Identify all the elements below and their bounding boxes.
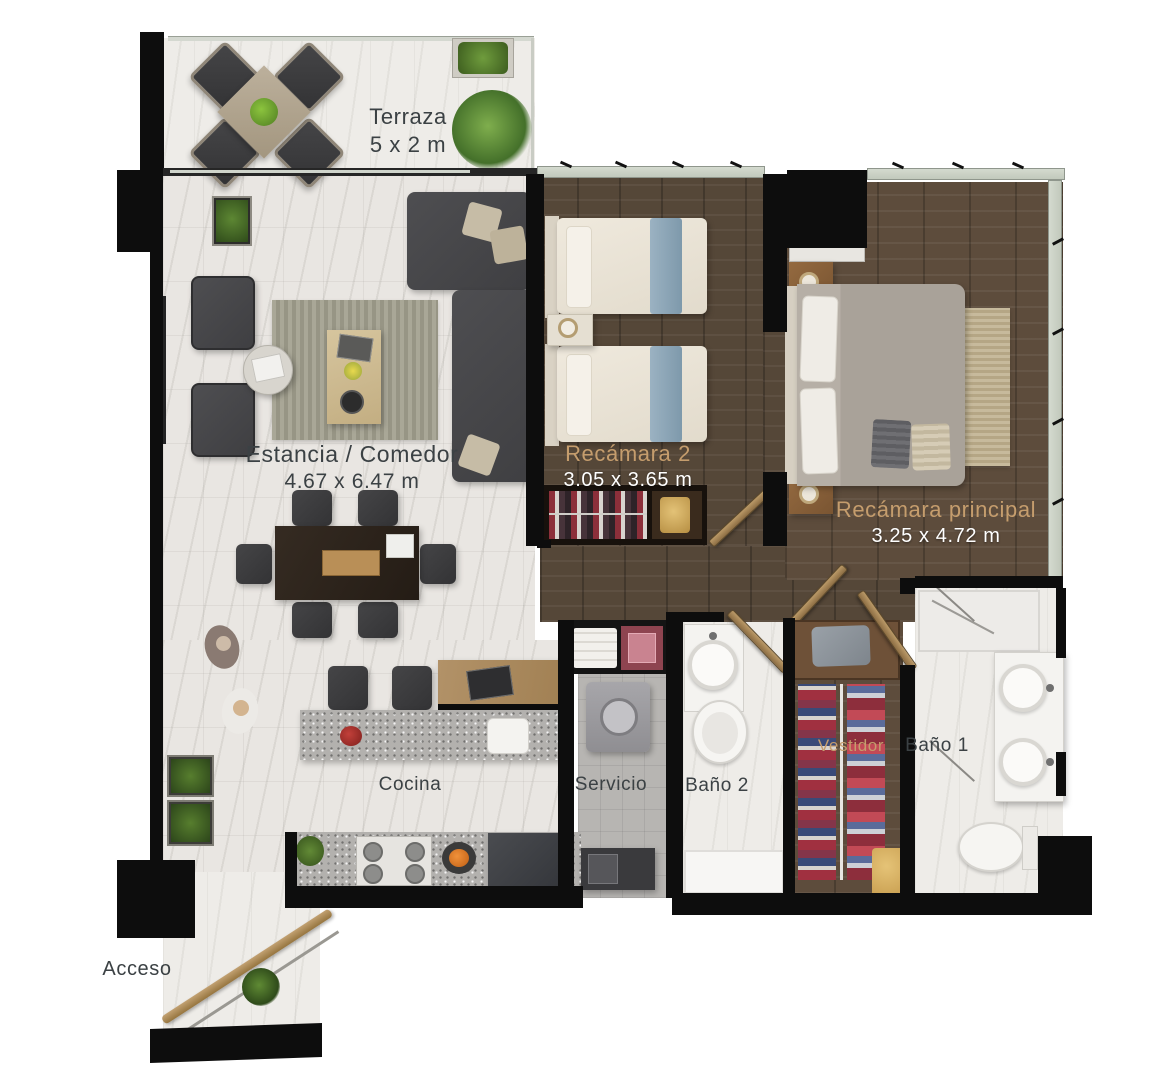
wall-living-recamara2 [526,174,544,546]
acceso-label-name: Acceso [102,957,171,983]
living-planter-plant [216,200,248,242]
wall-bottom-right-block [1038,836,1092,896]
recamara2-closet-clothes [549,491,647,539]
wall-bottom-left-block [117,860,195,938]
wall-bottom-main [672,893,1092,915]
person-figure-head [233,700,249,716]
servicio-pink-box-inner [628,633,656,663]
bano2-label-name: Baño 2 [685,774,749,798]
terraza-label-name: Terraza [369,103,447,131]
island-sink [487,718,529,754]
utility-sink-basin [588,854,618,884]
bed-blue-throw [650,346,682,442]
bano1-toilet-tank [1022,826,1038,870]
estancia-label-dims: 4.67 x 6.47 m [246,469,459,496]
recamara2-label-dims: 3.05 x 3.65 m [564,468,693,494]
wall-recamara2-master-lower [763,472,787,546]
wall-bano1-right-upper [1056,588,1066,658]
wall-left-protrusion [117,170,153,252]
wall-bano2-vestidor [783,618,795,913]
bar-stool [328,666,368,710]
bano2-toilet-seat [702,712,738,754]
window-recamara2-top [537,166,765,178]
wall-kitchen-left-stub [285,832,297,894]
estancia-label-name: Estancia / Comedor [246,440,459,469]
kitchen-desk-laptop [466,665,514,701]
stove-burner [405,864,425,884]
wall-terraza-left [140,32,164,174]
recamara2-label: Recámara 2 3.05 x 3.65 m [564,440,693,494]
terraza-sliding-door-glass [170,170,470,173]
wall-kitchen-servicio [558,620,574,890]
closet-basket [660,497,690,533]
dining-table-runner [386,534,414,558]
bano1-label-name: Baño 1 [905,734,969,758]
master-cushion [911,423,951,470]
patio-table-plant [250,98,278,126]
master-pillow [800,387,839,474]
bed-pillow [566,226,592,308]
terraza-label-dims: 5 x 2 m [369,131,447,159]
window-master-top [867,168,1065,180]
dining-chair [292,602,332,638]
acceso-plant [242,968,280,1006]
wall-servicio-bano2 [666,614,683,898]
bano1-label: Baño 1 [905,734,969,758]
recamara-principal-label: Recámara principal 3.25 x 4.72 m [836,496,1036,550]
armchair [191,276,255,350]
kitchen-plant [296,836,324,866]
wall-vestidor-bano1-lower [900,665,915,915]
recamara-principal-label-name: Recámara principal [836,496,1036,524]
vestidor-label-name: Vestidor [818,735,884,757]
vestidor-clothes-rail [840,684,843,880]
cocina-label: Cocina [379,773,442,797]
stove-burner [363,864,383,884]
left-planter-plant [171,804,210,842]
island-tomatoes [340,726,362,746]
dining-chair [420,544,456,584]
coffee-table-bowl [340,390,364,414]
wall-acceso-bottom [150,1023,322,1063]
master-closet-shelf [789,246,865,262]
bano1-shower [918,590,1040,652]
terraza-planter-plant [458,42,508,74]
bano1-faucet [1046,758,1054,766]
stove-burner [363,842,383,862]
dining-chair [358,602,398,638]
bano1-toilet [958,822,1024,872]
dining-table-board [322,550,380,576]
recamara-principal-label-dims: 3.25 x 4.72 m [836,524,1036,550]
bano1-sink [999,738,1047,786]
wall-recamara2-master-upper [763,174,787,332]
bano2-sink [688,640,738,690]
servicio-label-name: Servicio [575,773,647,797]
wall-bano1-top [915,576,1063,588]
bano1-sink [999,664,1047,712]
vestidor-label: Vestidor [818,735,884,757]
recamara2-master-door-gap-floor [763,332,787,472]
washer-door [600,698,638,736]
terraza-fern-plant [452,90,532,170]
closet-rod [549,513,647,515]
wall-bano2-top-stub [666,612,724,622]
coffee-table-flowers [344,362,362,380]
dining-chair [236,544,272,584]
bano2-label: Baño 2 [685,774,749,798]
bed-blue-throw [650,218,682,314]
terraza-right-rail [531,38,534,172]
bed-pillow [566,354,592,436]
fruit-bowl-oranges [449,849,469,867]
acceso-label: Acceso [102,957,171,983]
master-cushion [871,419,911,469]
bano2-faucet [709,632,717,640]
floor-plan-canvas: Terraza 5 x 2 m Estancia / Comedor 4.67 … [0,0,1153,1080]
terraza-label: Terraza 5 x 2 m [369,103,447,159]
recamara2-label-name: Recámara 2 [564,440,693,468]
nightstand-plate [799,484,819,504]
kitchen-appliance [488,833,564,891]
servicio-label: Servicio [575,773,647,797]
estancia-label: Estancia / Comedor 4.67 x 6.47 m [246,440,459,496]
wall-master-closet-block [787,170,867,248]
wall-bano1-right-mid [1056,752,1066,796]
master-rug [960,308,1010,466]
vestidor-bag [811,625,870,667]
bar-stool [392,666,432,710]
coffee-table-books [336,334,373,362]
servicio-towels [573,628,617,668]
vestidor-clothes-rack-left [798,684,836,880]
master-pillow [800,295,839,382]
cocina-label-name: Cocina [379,773,442,797]
sofa-pillow [489,225,528,264]
wall-left-main [150,174,163,866]
wall-vestidor-bano1-upper [900,578,915,594]
bano2-shower-tray [684,850,784,894]
stove-burner [405,842,425,862]
left-planter-plant [171,759,210,793]
bano1-faucet [1046,684,1054,692]
nightstand-plate [558,318,578,338]
wall-kitchen-bottom [285,886,583,908]
person-figure-head [216,636,231,651]
wall-recamara2-bottom [537,540,551,548]
